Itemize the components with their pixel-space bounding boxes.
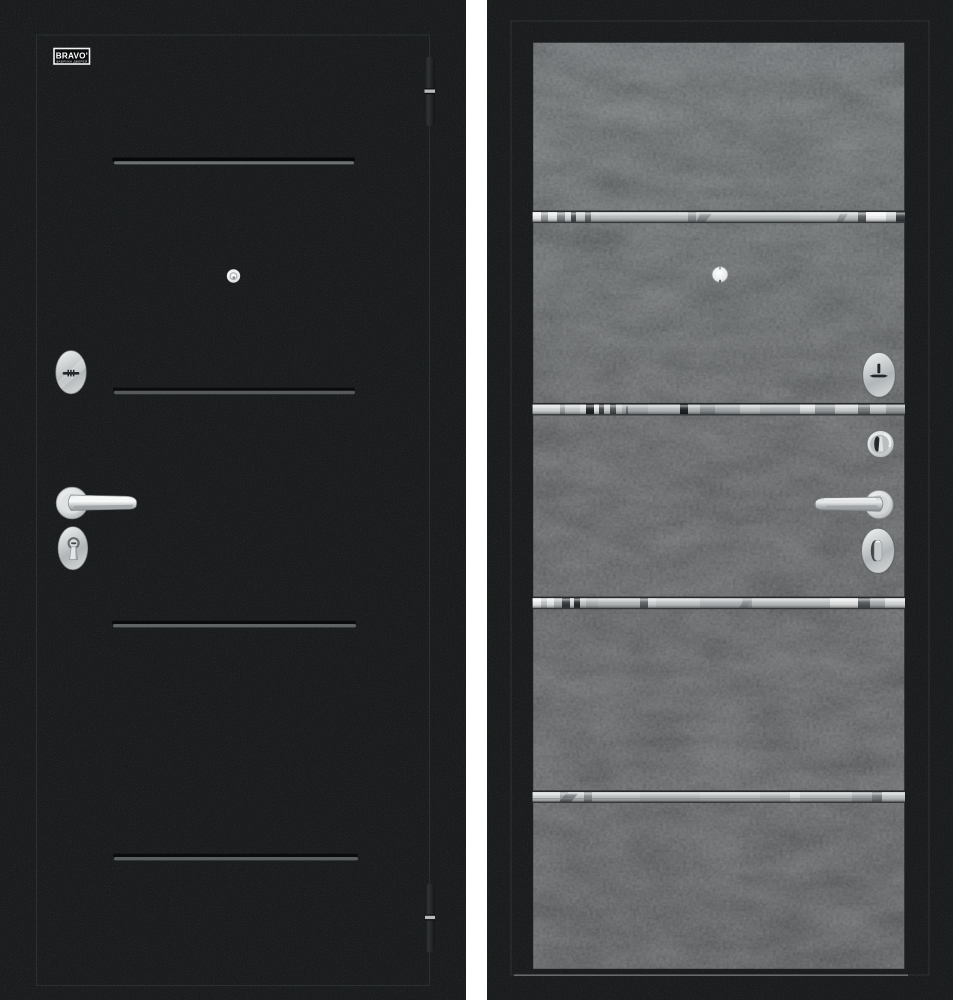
- svg-text:ФАБРИКА ДВЕРЕЙ: ФАБРИКА ДВЕРЕЙ: [56, 60, 87, 64]
